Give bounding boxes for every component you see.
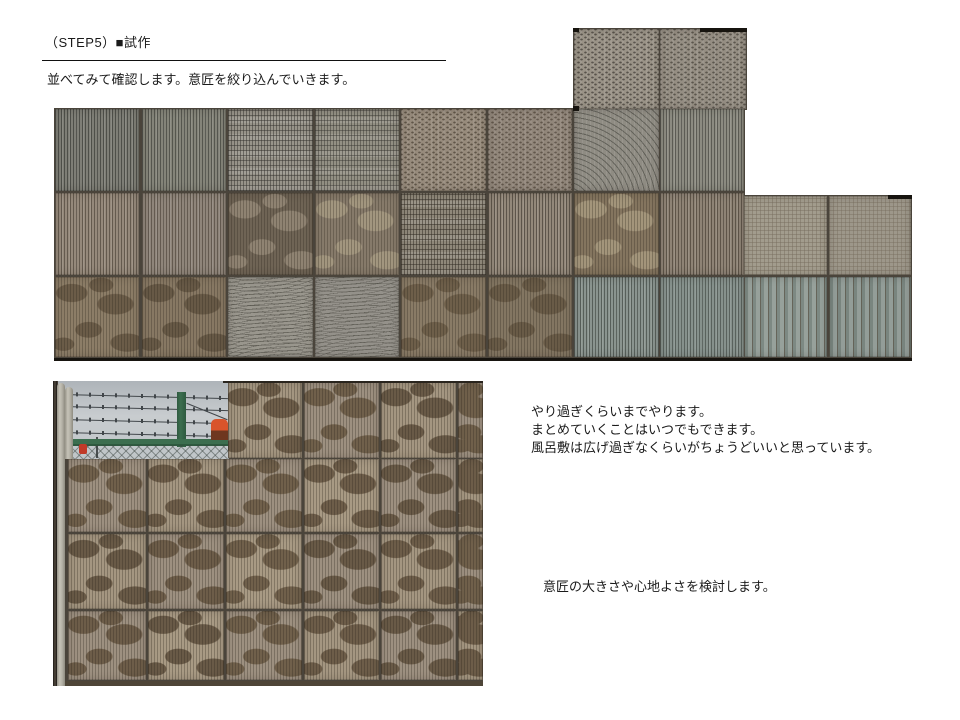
tile bbox=[574, 29, 659, 109]
dark-mark bbox=[888, 195, 912, 199]
tile bbox=[488, 193, 572, 275]
dark-mark bbox=[54, 358, 912, 361]
tile bbox=[744, 196, 827, 275]
tile bbox=[574, 277, 659, 357]
tile bbox=[660, 193, 744, 275]
tile bbox=[829, 196, 911, 275]
tile-montage-photo bbox=[54, 28, 912, 361]
wall-tile bbox=[226, 459, 302, 532]
wall-tile bbox=[148, 534, 224, 609]
tile bbox=[55, 109, 139, 191]
design-note: 意匠の大きさや心地よさを検討します。 bbox=[543, 576, 776, 595]
wall-tile bbox=[381, 611, 456, 680]
wall-tile bbox=[381, 534, 456, 609]
wall-tile bbox=[381, 382, 456, 458]
wall-tile bbox=[226, 611, 302, 680]
dark-mark bbox=[573, 28, 579, 32]
wall-tile bbox=[458, 611, 483, 680]
note-line: 風呂敷は広げ過ぎなくらいがちょうどいいと思っています。 bbox=[531, 439, 880, 457]
wall-tile bbox=[458, 382, 483, 458]
wall-photo bbox=[53, 381, 483, 686]
wall-tile bbox=[304, 534, 379, 609]
tile bbox=[142, 109, 226, 191]
wall-tile bbox=[148, 611, 224, 680]
red-marker bbox=[79, 444, 87, 454]
tile bbox=[142, 193, 226, 275]
dark-mark bbox=[573, 106, 579, 111]
tile bbox=[574, 193, 659, 275]
wall-tile bbox=[68, 611, 146, 680]
tile bbox=[660, 277, 744, 357]
slide-background: （STEP5）■試作 並べてみて確認します。意匠を絞り込んでいきます。 やり過ぎ… bbox=[0, 0, 960, 720]
tile bbox=[315, 109, 399, 191]
tile bbox=[488, 109, 572, 191]
wall-tile bbox=[148, 459, 224, 532]
tile bbox=[401, 277, 486, 357]
tile bbox=[829, 277, 911, 357]
photo-top-edge bbox=[223, 381, 483, 383]
tile bbox=[315, 193, 399, 275]
wall-tile bbox=[226, 534, 302, 609]
wall-tile bbox=[68, 534, 146, 609]
tile bbox=[142, 277, 226, 357]
wall-tile bbox=[381, 459, 456, 532]
wall-tile bbox=[304, 459, 379, 532]
concrete-post bbox=[57, 383, 65, 686]
tile bbox=[660, 29, 746, 109]
tile bbox=[228, 109, 313, 191]
tile bbox=[228, 277, 313, 357]
note-line: まとめていくことはいつでもできます。 bbox=[531, 421, 880, 439]
wall-tile bbox=[228, 382, 302, 458]
wall-tile bbox=[458, 459, 483, 532]
tile bbox=[744, 277, 827, 357]
wall-tile bbox=[304, 611, 379, 680]
wall-tile bbox=[68, 459, 146, 532]
concrete-post bbox=[65, 387, 73, 459]
tile bbox=[574, 109, 659, 191]
tile bbox=[401, 109, 486, 191]
dark-mark bbox=[700, 28, 747, 32]
orange-cone bbox=[211, 419, 228, 440]
tile bbox=[55, 193, 139, 275]
wall-tile bbox=[304, 382, 379, 458]
tile bbox=[401, 193, 486, 275]
tile bbox=[55, 277, 139, 357]
tile bbox=[660, 109, 744, 191]
tile bbox=[228, 193, 313, 275]
note-line: やり過ぎくらいまでやります。 bbox=[531, 403, 880, 421]
wall-tile bbox=[458, 534, 483, 609]
note-paragraph: やり過ぎくらいまでやります。 まとめていくことはいつでもできます。 風呂敷は広げ… bbox=[531, 403, 880, 457]
photo-bottom-strip bbox=[53, 681, 483, 686]
tile bbox=[488, 277, 572, 357]
tile bbox=[315, 277, 399, 357]
